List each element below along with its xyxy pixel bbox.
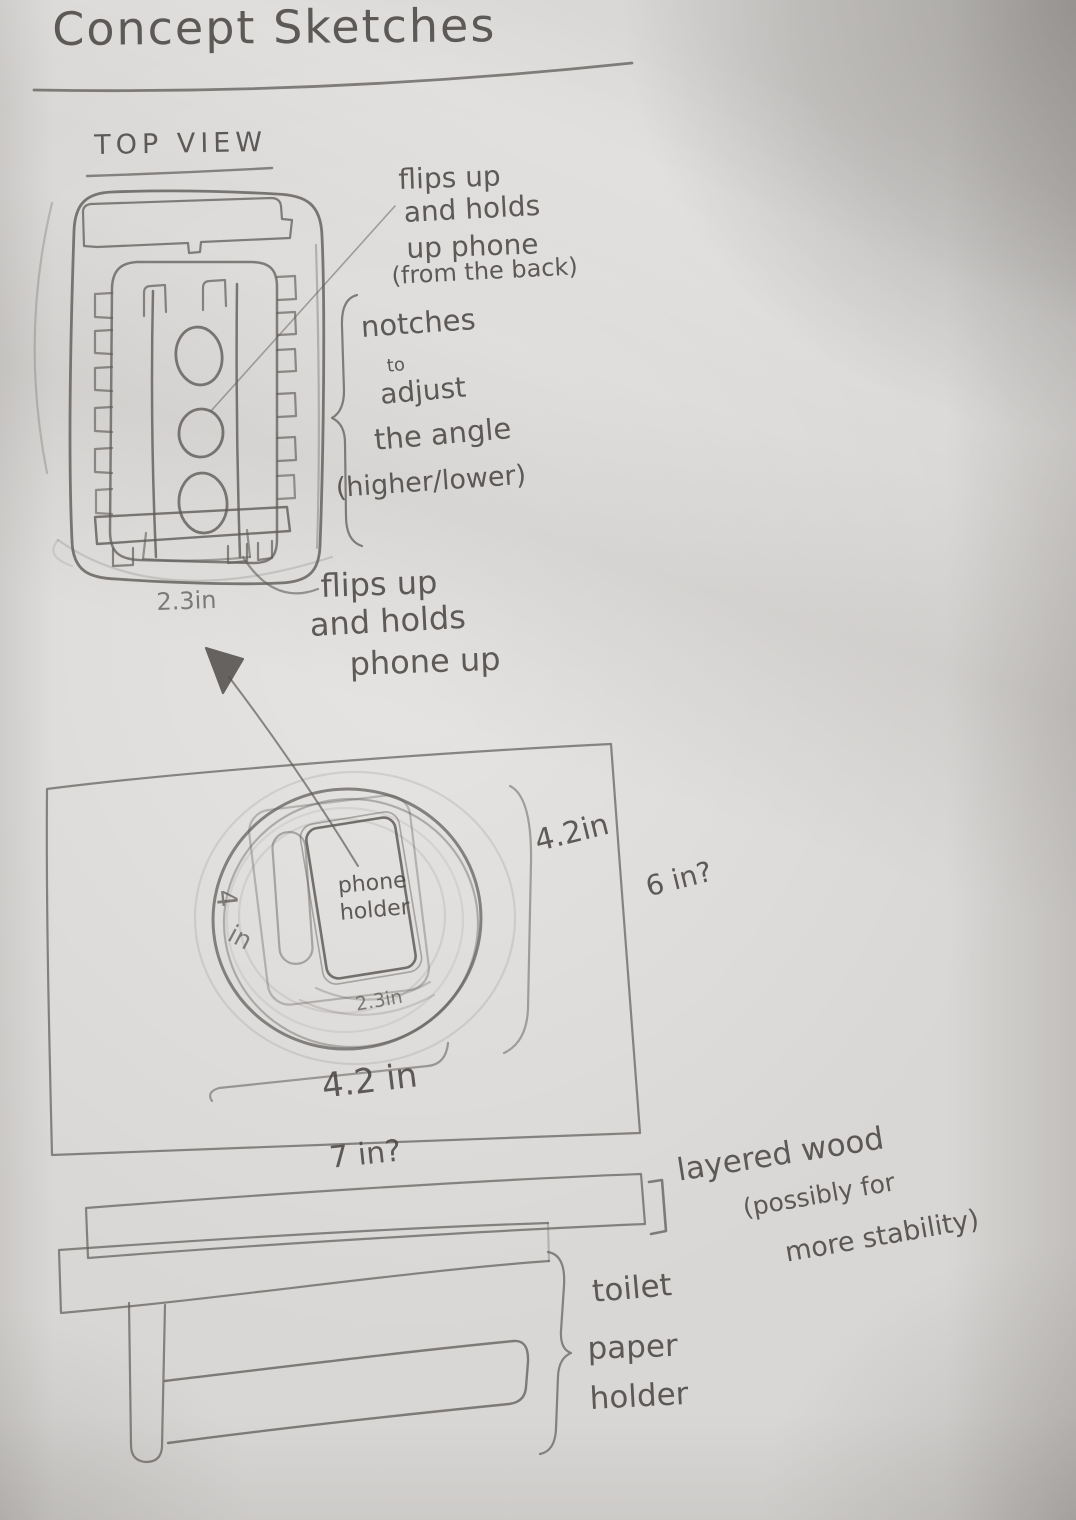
adjust-hole bbox=[177, 407, 226, 459]
note-notches-line1: notches bbox=[360, 305, 477, 342]
phone-label-line2: holder bbox=[339, 897, 411, 925]
toilet-paper-brace bbox=[540, 1252, 571, 1454]
dim-bracket-right bbox=[504, 786, 531, 1053]
notch bbox=[277, 349, 296, 372]
notch bbox=[277, 475, 295, 499]
notch bbox=[95, 407, 112, 432]
notch bbox=[277, 437, 296, 461]
outer-body bbox=[70, 191, 324, 584]
notch bbox=[277, 312, 296, 335]
note-toilet-paper-line1: toilet bbox=[591, 1270, 673, 1308]
sketch-linework bbox=[0, 0, 1076, 1520]
wood-plank-bottom bbox=[59, 1223, 549, 1313]
holder-post bbox=[129, 1303, 165, 1462]
strip-left-rail bbox=[152, 291, 156, 557]
wood-plank-top bbox=[86, 1174, 645, 1258]
note-flip-bottom-line3: phone up bbox=[349, 643, 501, 680]
note-notches-line2: to bbox=[386, 356, 406, 376]
note-toilet-paper-line3: holder bbox=[589, 1379, 689, 1415]
phone-label-line1: phone bbox=[337, 870, 408, 898]
strip-right-rail bbox=[237, 284, 240, 557]
title-underline bbox=[34, 63, 632, 91]
wood-plank-bottom-end bbox=[548, 1223, 549, 1261]
notches-brace bbox=[332, 295, 362, 546]
arrow-shaft bbox=[229, 677, 358, 866]
adjust-hole bbox=[176, 471, 229, 535]
notch bbox=[277, 276, 296, 300]
note-flip-top-line2: and holds bbox=[403, 192, 541, 227]
notch bbox=[95, 367, 112, 391]
paper-sheet: Concept Sketches TOP VIEW flips up and h… bbox=[0, 0, 1076, 1520]
strip-hook bbox=[203, 280, 226, 310]
side-view-drawing bbox=[59, 1174, 666, 1462]
inner-frame bbox=[110, 262, 277, 563]
notch bbox=[95, 330, 112, 354]
dim-top-width: 2.3in bbox=[156, 588, 217, 614]
paper-roll-bar bbox=[165, 1341, 528, 1443]
ghost-parenthesis bbox=[35, 203, 52, 473]
flip-arm-bottom bbox=[95, 507, 290, 544]
dim-height-4: 4 bbox=[211, 888, 241, 909]
adjust-hole bbox=[172, 324, 226, 388]
note-flip-bottom-line2: and holds bbox=[309, 601, 467, 641]
top-view-drawing bbox=[35, 191, 395, 593]
note-flip-top-line1: flips up bbox=[398, 162, 501, 194]
page-title: Concept Sketches bbox=[52, 2, 497, 52]
note-toilet-paper-line2: paper bbox=[587, 1331, 678, 1365]
strip-bottom bbox=[144, 557, 250, 561]
dim-base-length: 7 in? bbox=[328, 1136, 403, 1173]
note-flip-bottom-line1: flips up bbox=[320, 566, 438, 602]
notch bbox=[95, 293, 112, 318]
layered-wood-bracket bbox=[649, 1180, 666, 1234]
top-view-heading: TOP VIEW bbox=[94, 129, 267, 159]
arrow-head bbox=[206, 648, 243, 693]
notch bbox=[277, 393, 296, 417]
strip-hook bbox=[144, 285, 166, 316]
foot-tick bbox=[258, 541, 272, 560]
flip-arm-top bbox=[83, 198, 292, 253]
note-notches-line3: adjust bbox=[379, 374, 467, 409]
top-view-underline bbox=[87, 168, 272, 176]
